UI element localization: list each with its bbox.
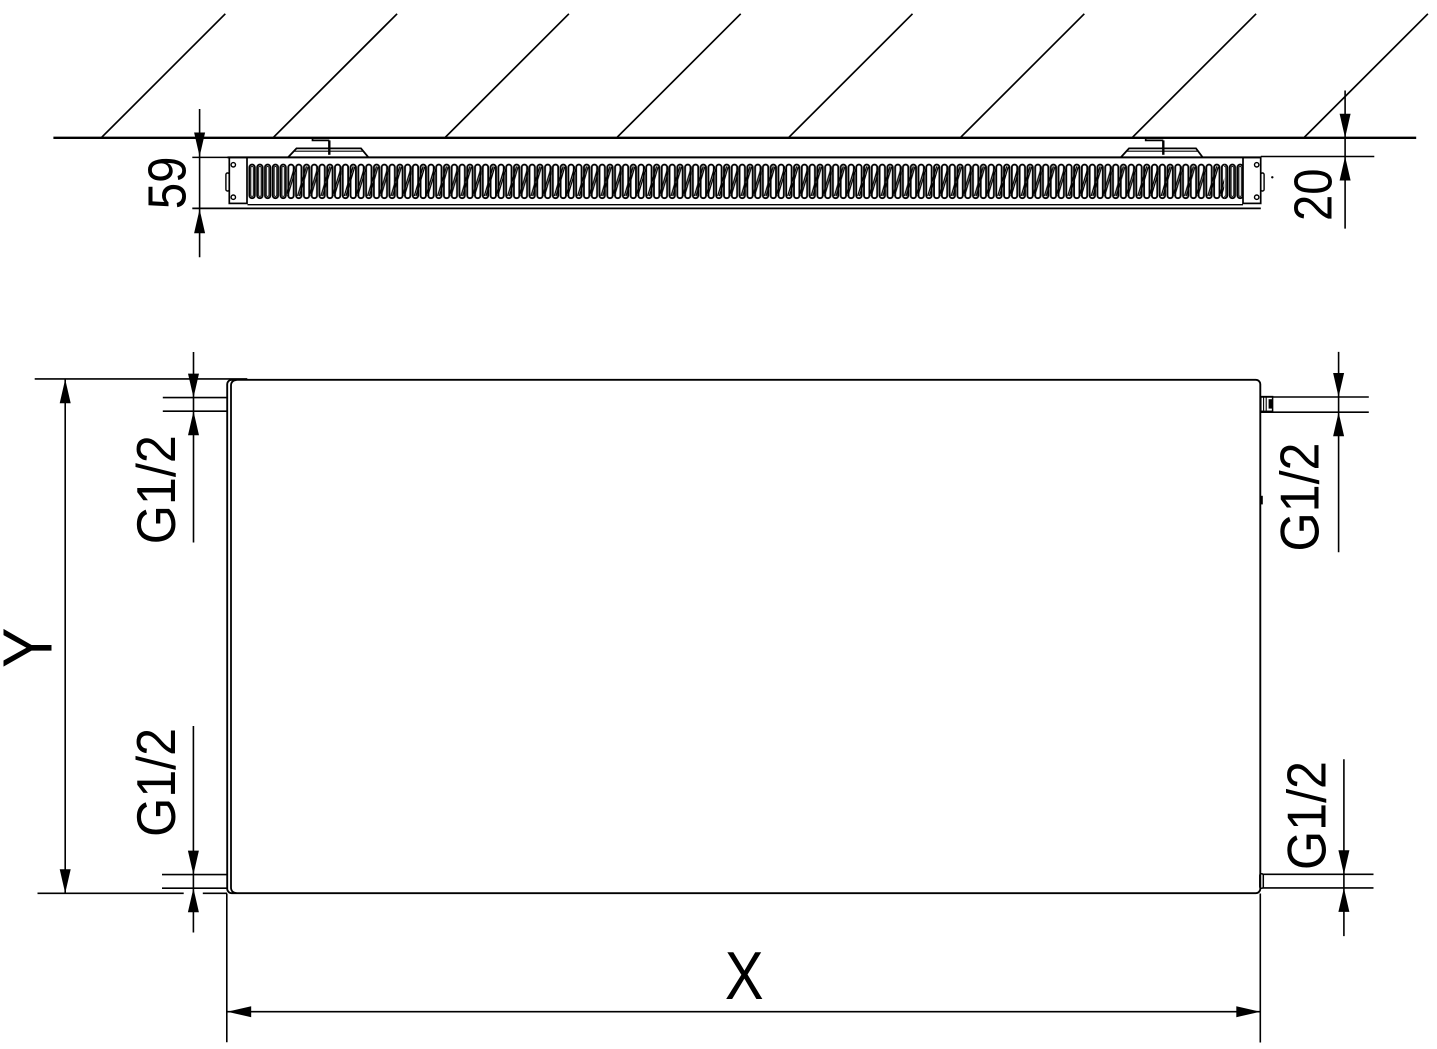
- svg-text:Y: Y: [0, 627, 67, 668]
- svg-text:G1/2: G1/2: [1269, 443, 1331, 552]
- svg-text:G1/2: G1/2: [125, 435, 187, 544]
- svg-text:59: 59: [139, 157, 198, 210]
- svg-text:G1/2: G1/2: [1276, 761, 1338, 870]
- svg-text:20: 20: [1284, 168, 1343, 221]
- svg-text:G1/2: G1/2: [125, 728, 187, 837]
- svg-text:X: X: [725, 938, 764, 1014]
